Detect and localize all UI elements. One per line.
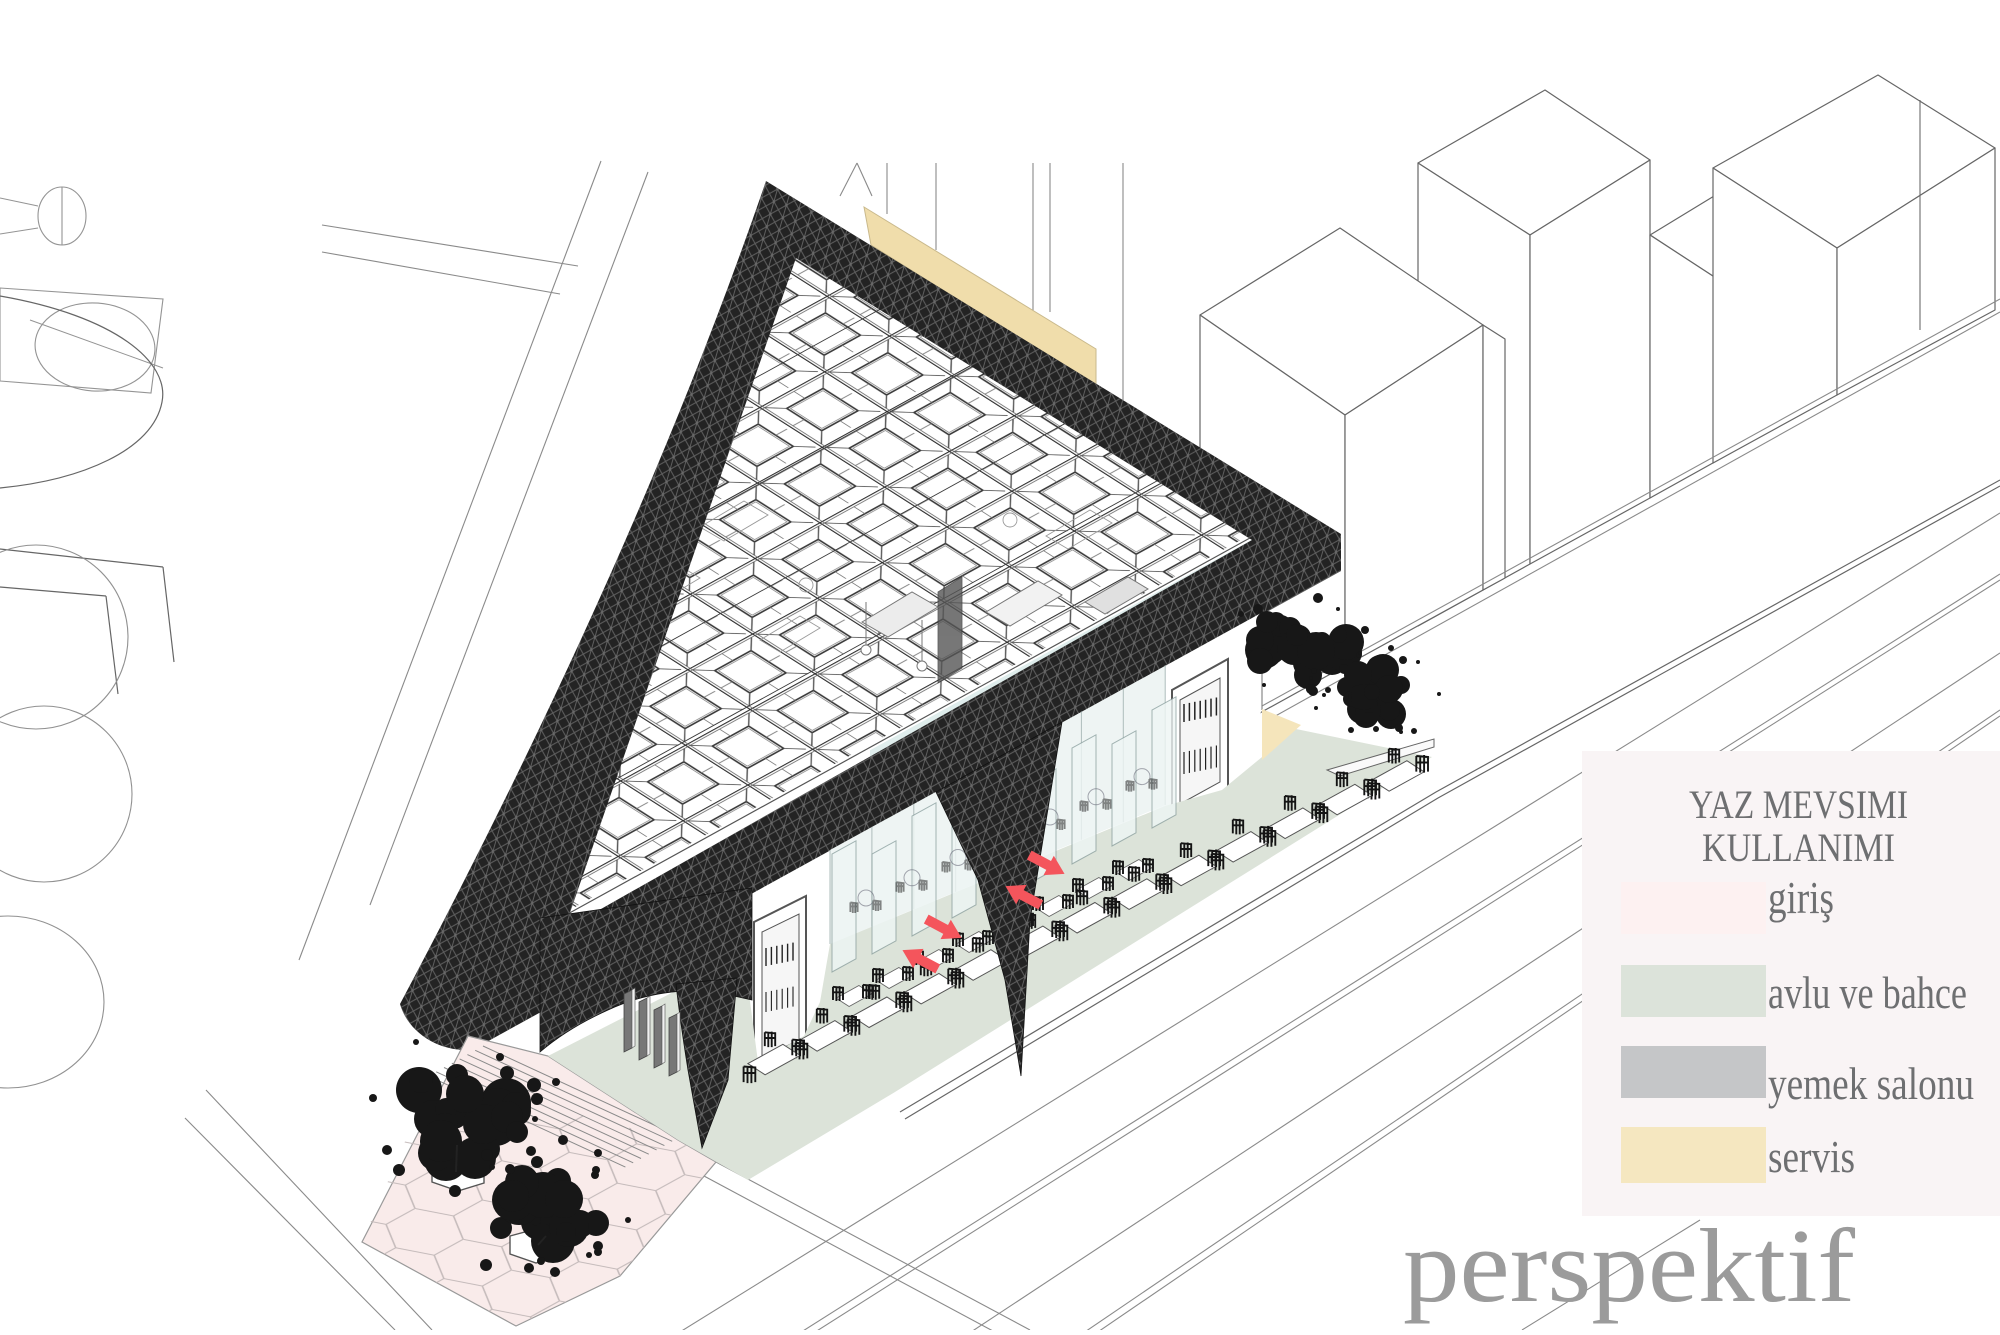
svg-text:giriş: giriş: [1768, 872, 1834, 923]
svg-text:yemek salonu: yemek salonu: [1768, 1058, 1974, 1109]
svg-text:perspektif: perspektif: [1403, 1207, 1855, 1324]
svg-text:avlu ve bahce: avlu ve bahce: [1768, 967, 1967, 1018]
svg-text:YAZ MEVSIMI: YAZ MEVSIMI: [1689, 782, 1908, 827]
svg-text:servis: servis: [1768, 1131, 1855, 1182]
svg-text:KULLANIMI: KULLANIMI: [1702, 825, 1895, 870]
